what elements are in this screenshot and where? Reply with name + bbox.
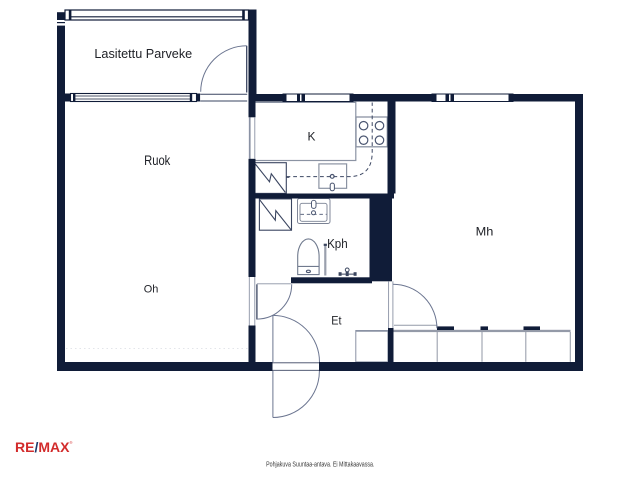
svg-text:Ruok: Ruok [144,153,170,168]
svg-text:Mh: Mh [476,225,494,239]
svg-text:RE/MAX: RE/MAX [15,439,70,455]
svg-text:Kph: Kph [327,237,348,251]
svg-text:K: K [308,130,316,144]
svg-text:Oh: Oh [144,284,159,296]
svg-text:®: ® [70,440,73,445]
svg-text:Et: Et [331,314,342,328]
svg-text:Pohjakuva Suuntaa-antava. Ei M: Pohjakuva Suuntaa-antava. Ei Mittakaavas… [266,462,374,469]
svg-text:Lasitettu Parveke: Lasitettu Parveke [94,46,192,61]
